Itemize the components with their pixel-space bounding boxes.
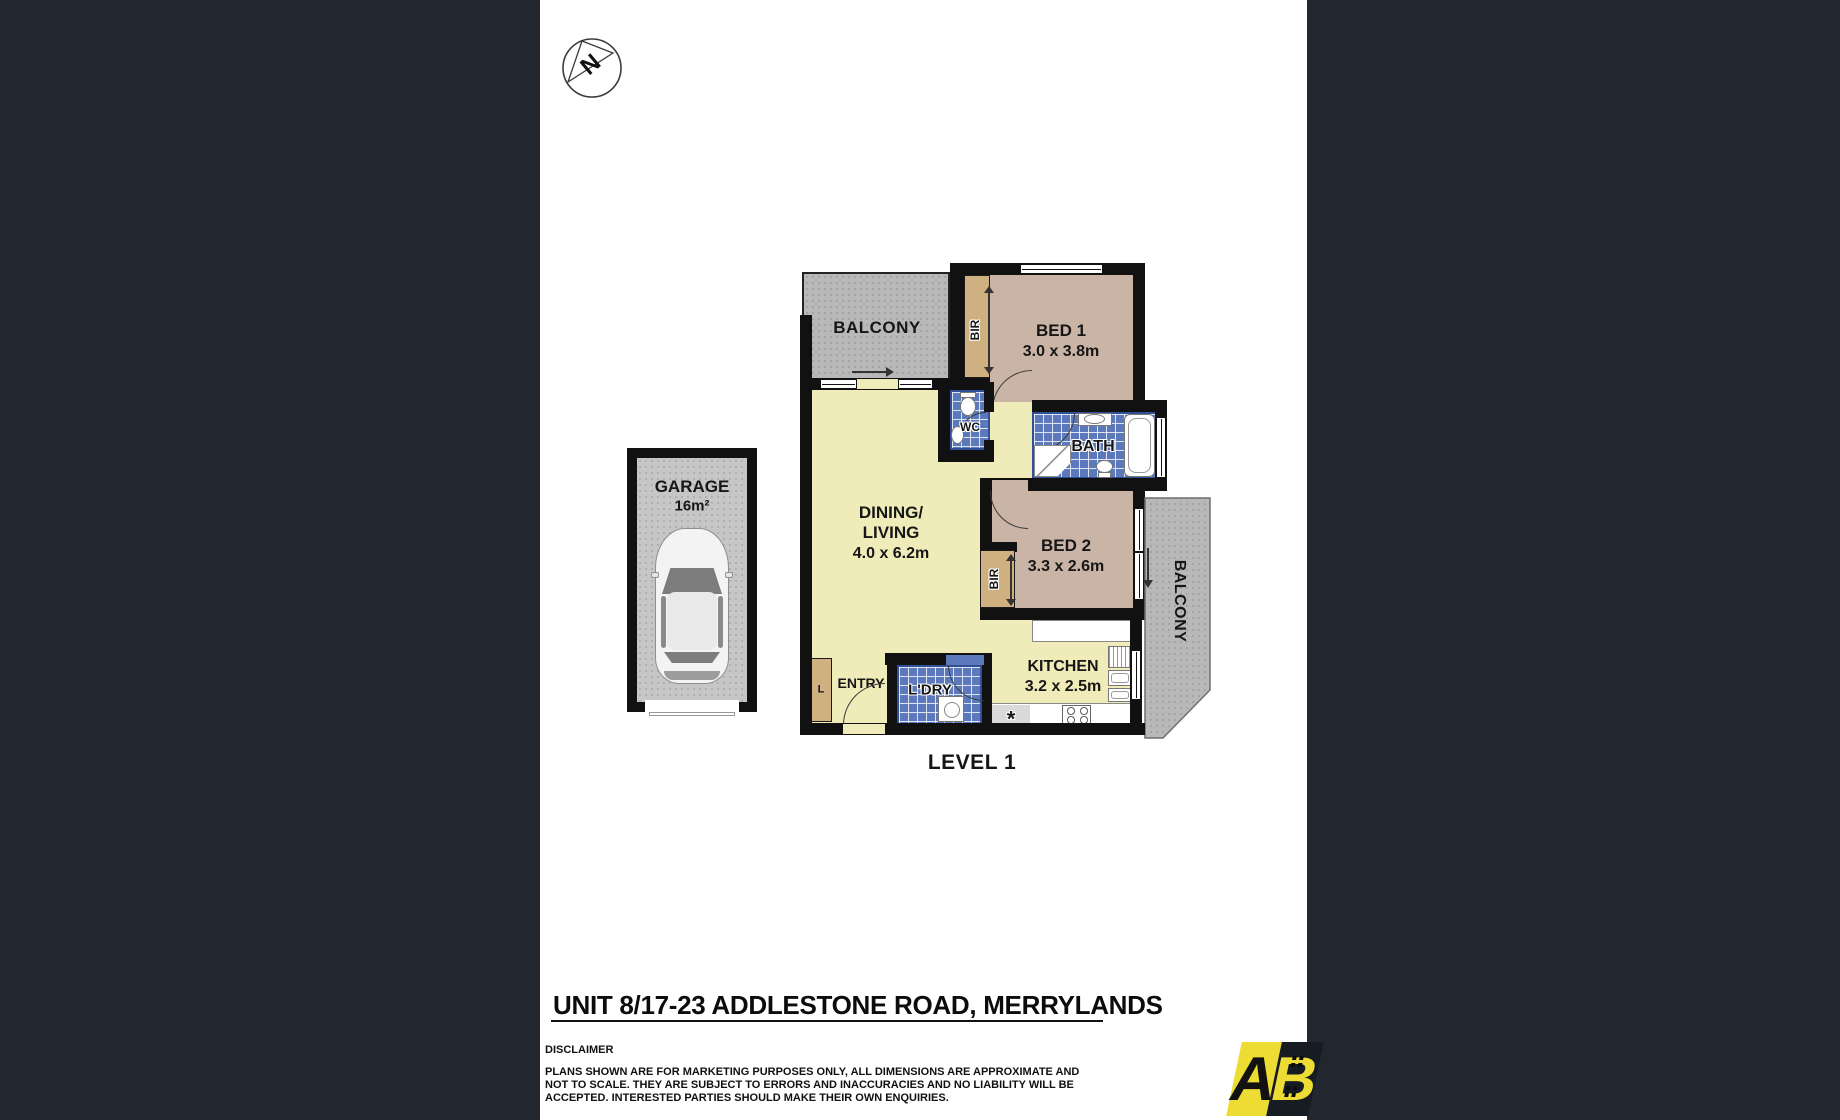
slider-arrow xyxy=(852,371,886,373)
wall xyxy=(950,263,964,390)
wall xyxy=(980,608,1145,620)
wall xyxy=(938,450,990,462)
bed2-door-opening xyxy=(992,480,1028,491)
washing-machine xyxy=(938,696,964,722)
floorplan-image: N GARAGE 16m² BALCONY BIR BED 1 3.0 x 3.… xyxy=(0,0,1840,1120)
window xyxy=(820,379,857,389)
logo-window-icon xyxy=(1284,1086,1297,1097)
title-underline xyxy=(551,1020,1103,1022)
address-title: UNIT 8/17-23 ADDLESTONE ROAD, MERRYLANDS xyxy=(553,990,1163,1021)
kitchen-sink xyxy=(1108,688,1132,702)
kitchen-sink xyxy=(1108,670,1132,686)
laundry-door-opening xyxy=(946,655,984,665)
balcony-entry-arrow xyxy=(1147,548,1149,582)
balcony-entry-arrow-head xyxy=(1143,580,1153,588)
disclaimer-line: PLANS SHOWN ARE FOR MARKETING PURPOSES O… xyxy=(545,1066,1079,1078)
bir1-label: BIR xyxy=(969,320,983,341)
slider-arrow-head xyxy=(886,367,894,377)
window xyxy=(1020,264,1103,274)
stove-cooktop xyxy=(1062,705,1091,724)
toilet xyxy=(960,397,976,416)
bed2-label: BED 2 xyxy=(1041,536,1091,556)
bathtub-inner xyxy=(1128,418,1151,473)
agency-logo: A B xyxy=(1226,1042,1324,1116)
kitchen-appliance xyxy=(1108,646,1132,668)
garage-label: GARAGE xyxy=(655,477,730,497)
bed1-label: BED 1 xyxy=(1036,321,1086,341)
balcony-slider-opening xyxy=(857,379,898,389)
car-window-left xyxy=(661,596,666,648)
window xyxy=(898,379,933,389)
level-label: LEVEL 1 xyxy=(928,751,1016,775)
garage-area-label: 16m² xyxy=(674,497,709,514)
dining-label-line1: DINING/ xyxy=(859,503,923,523)
linen-label: L xyxy=(818,684,825,697)
bath-label: BATH xyxy=(1071,438,1114,456)
window xyxy=(1131,650,1141,700)
garage-door-opening xyxy=(645,700,739,712)
car-rear-window xyxy=(664,652,720,663)
logo-window-icon xyxy=(1291,1056,1304,1067)
wall xyxy=(1133,263,1145,413)
toilet xyxy=(1098,472,1111,478)
garage-door xyxy=(649,712,735,716)
bed2-dims-label: 3.3 x 2.6m xyxy=(1028,558,1105,576)
window xyxy=(1156,417,1166,478)
car-mirror-left xyxy=(651,572,659,578)
laundry-label: L'DRY xyxy=(908,681,952,698)
bir2-label: BIR xyxy=(988,569,1002,590)
balcony-right-label: BALCONY xyxy=(1170,560,1188,643)
disclaimer-line: ACCEPTED. INTERESTED PARTIES SHOULD MAKE… xyxy=(545,1092,949,1104)
car-top-view xyxy=(655,528,729,684)
north-compass-icon: N xyxy=(550,26,634,110)
car-rear-bumper xyxy=(664,671,720,680)
dining-label-line2: LIVING xyxy=(863,523,920,543)
bed1-dims-label: 3.0 x 3.8m xyxy=(1023,343,1100,361)
kitchen-label: KITCHEN xyxy=(1027,658,1098,676)
wardrobe-door-arrows xyxy=(1006,554,1016,606)
wall xyxy=(887,653,897,733)
car-window-right xyxy=(718,596,723,648)
basin xyxy=(1084,414,1105,424)
entry-door-opening xyxy=(843,724,885,734)
wardrobe-door-arrows xyxy=(984,286,994,374)
disclaimer-line: NOT TO SCALE. THEY ARE SUBJECT TO ERRORS… xyxy=(545,1079,1074,1091)
kitchen-counter-top xyxy=(1032,620,1133,642)
wall xyxy=(984,382,994,412)
kitchen-dims-label: 3.2 x 2.5m xyxy=(1025,678,1102,696)
wall xyxy=(800,388,812,735)
car-windshield xyxy=(662,568,722,594)
wall xyxy=(984,440,994,462)
car-roof xyxy=(667,592,717,650)
car-mirror-right xyxy=(725,572,733,578)
compass-n-label: N xyxy=(575,49,606,81)
wc-label: WC xyxy=(960,421,980,435)
balcony-top-label: BALCONY xyxy=(833,318,921,338)
disclaimer-heading: DISCLAIMER xyxy=(545,1044,613,1056)
dining-dims-label: 4.0 x 6.2m xyxy=(853,545,930,563)
